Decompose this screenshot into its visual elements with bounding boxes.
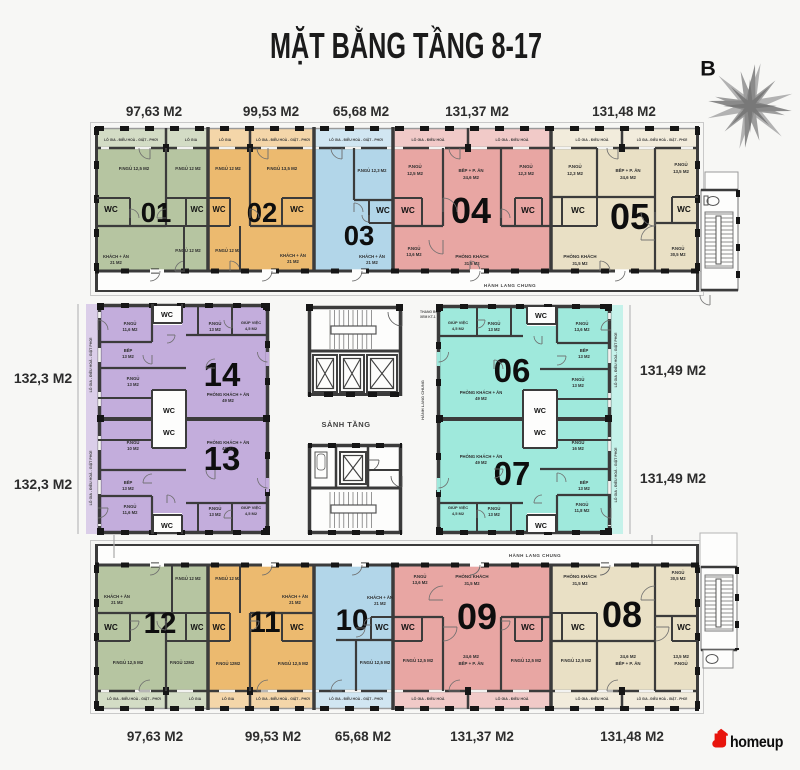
- svg-text:P.NGỦ 12,5 M2: P.NGỦ 12,5 M2: [403, 658, 434, 663]
- svg-text:WC: WC: [534, 428, 546, 437]
- svg-text:13,6 M2: 13,6 M2: [406, 252, 422, 257]
- svg-text:P.NGỦ: P.NGỦ: [576, 502, 589, 507]
- svg-text:P.NGỦ: P.NGỦ: [209, 321, 222, 326]
- svg-text:LÔ GIA - ĐIỀU HOÀ - GIẶT PHƠI: LÔ GIA - ĐIỀU HOÀ - GIẶT PHƠI: [613, 448, 618, 503]
- svg-text:LÔ GIA - ĐIỀU HOÀ - GIẶT PHƠI: LÔ GIA - ĐIỀU HOÀ - GIẶT PHƠI: [88, 451, 93, 506]
- svg-text:XEM KT-1: XEM KT-1: [420, 315, 436, 319]
- svg-text:WC: WC: [290, 623, 304, 632]
- svg-text:P.NGỦ 12M2: P.NGỦ 12M2: [216, 661, 241, 666]
- svg-text:P.NGỦ: P.NGỦ: [488, 506, 501, 511]
- svg-text:P.NGỦ 12 M2: P.NGỦ 12 M2: [175, 166, 201, 171]
- svg-text:PHÒNG KHÁCH + ĂN: PHÒNG KHÁCH + ĂN: [207, 392, 249, 397]
- svg-text:132,3 M2: 132,3 M2: [14, 476, 73, 492]
- svg-text:21 M2: 21 M2: [289, 600, 301, 605]
- svg-text:P.NGỦ: P.NGỦ: [408, 246, 421, 251]
- svg-text:LÔ GIA: LÔ GIA: [185, 137, 198, 142]
- svg-text:131,49 M2: 131,49 M2: [640, 362, 706, 378]
- svg-text:P.NGỦ: P.NGỦ: [572, 440, 585, 445]
- svg-text:KHÁCH + ĂN: KHÁCH + ĂN: [104, 594, 130, 599]
- svg-text:BẾP + P. ĂN: BẾP + P. ĂN: [615, 168, 640, 173]
- svg-text:12,3 M2: 12,3 M2: [567, 171, 583, 176]
- svg-text:24,6 M2: 24,6 M2: [463, 654, 479, 659]
- svg-text:49 M2: 49 M2: [475, 396, 487, 401]
- svg-text:P.NGỦ 12M2: P.NGỦ 12M2: [170, 660, 195, 665]
- svg-text:BẾP: BẾP: [124, 480, 133, 485]
- svg-text:P.NGỦ: P.NGỦ: [672, 246, 685, 251]
- svg-text:24,6 M2: 24,6 M2: [620, 175, 636, 180]
- svg-text:P.NGỦ 12,5 M2: P.NGỦ 12,5 M2: [561, 658, 592, 663]
- svg-text:PHÒNG KHÁCH + ĂN: PHÒNG KHÁCH + ĂN: [207, 440, 249, 445]
- svg-text:PHÒNG KHÁCH + ĂN: PHÒNG KHÁCH + ĂN: [460, 390, 502, 395]
- svg-text:P.NGỦ: P.NGỦ: [408, 164, 421, 169]
- svg-text:P.NGỦ: P.NGỦ: [488, 321, 501, 326]
- svg-text:LÔ GIA - ĐIỀU HOÀ - GIẶT - PHƠ: LÔ GIA - ĐIỀU HOÀ - GIẶT - PHƠI: [104, 137, 158, 142]
- svg-text:LÔ GIA - ĐIỀU HOÀ: LÔ GIA - ĐIỀU HOÀ: [495, 137, 528, 142]
- svg-text:132,3 M2: 132,3 M2: [14, 370, 73, 386]
- svg-text:LÔ GIA - ĐIỀU HOÀ - GIẶT PHƠI: LÔ GIA - ĐIỀU HOÀ - GIẶT PHƠI: [88, 338, 93, 393]
- svg-text:WC: WC: [401, 206, 415, 215]
- svg-text:P.NGỦ 12,5 M2: P.NGỦ 12,5 M2: [119, 166, 150, 171]
- svg-text:LÔ GIA - ĐIỀU HOÀ: LÔ GIA - ĐIỀU HOÀ: [575, 696, 608, 701]
- svg-text:21 M2: 21 M2: [110, 260, 122, 265]
- svg-text:21 M2: 21 M2: [374, 601, 386, 606]
- svg-text:13 M2: 13 M2: [122, 486, 134, 491]
- svg-text:31,5 M2: 31,5 M2: [464, 581, 480, 586]
- svg-text:49 M2: 49 M2: [475, 460, 487, 465]
- svg-text:24,6 M2: 24,6 M2: [463, 175, 479, 180]
- svg-text:LÔ GIA - ĐIỀU HOÀ: LÔ GIA - ĐIỀU HOÀ: [575, 137, 608, 142]
- svg-text:GIÚP VIỆC: GIÚP VIỆC: [241, 320, 261, 325]
- svg-text:24,6 M2: 24,6 M2: [620, 654, 636, 659]
- svg-text:131,37 M2: 131,37 M2: [450, 729, 514, 744]
- svg-text:WC: WC: [677, 623, 691, 632]
- svg-text:BẾP: BẾP: [124, 348, 133, 353]
- svg-text:P.NGỦ: P.NGỦ: [124, 321, 137, 326]
- svg-text:131,37 M2: 131,37 M2: [445, 104, 509, 119]
- svg-text:11,6 M2: 11,6 M2: [123, 510, 139, 515]
- svg-text:WC: WC: [535, 521, 547, 530]
- svg-text:PHÒNG KHÁCH: PHÒNG KHÁCH: [563, 574, 596, 579]
- svg-text:WC: WC: [401, 623, 415, 632]
- svg-text:21 M2: 21 M2: [366, 260, 378, 265]
- svg-text:06: 06: [494, 352, 531, 389]
- svg-text:PHÒNG KHÁCH + ĂN: PHÒNG KHÁCH + ĂN: [460, 454, 502, 459]
- svg-text:131,48 M2: 131,48 M2: [592, 104, 656, 119]
- svg-text:P.NGỦ: P.NGỦ: [124, 504, 137, 509]
- svg-text:LÔ GIA: LÔ GIA: [219, 137, 232, 142]
- svg-text:03: 03: [344, 220, 375, 251]
- svg-text:131,49 M2: 131,49 M2: [640, 470, 706, 486]
- svg-text:HÀNH LANG CHUNG: HÀNH LANG CHUNG: [509, 552, 561, 558]
- svg-text:4,5 M2: 4,5 M2: [452, 326, 465, 331]
- svg-text:P.NGỦ: P.NGỦ: [572, 377, 585, 382]
- svg-text:MẶT BẰNG TẦNG 8-17: MẶT BẰNG TẦNG 8-17: [270, 25, 542, 66]
- svg-text:65,68 M2: 65,68 M2: [333, 104, 389, 119]
- svg-text:13 M2: 13 M2: [209, 512, 221, 517]
- svg-text:LÔ GIA - ĐIỀU HOÀ - GIẶT - PHƠ: LÔ GIA - ĐIỀU HOÀ - GIẶT - PHƠI: [637, 137, 688, 142]
- svg-text:BẾP: BẾP: [580, 480, 589, 485]
- svg-text:LÔ GIA - ĐIỀU HOÀ - GIẶT - PHƠ: LÔ GIA - ĐIỀU HOÀ - GIẶT - PHƠI: [256, 696, 310, 701]
- svg-text:30,5 M2: 30,5 M2: [670, 576, 686, 581]
- svg-text:WC: WC: [191, 205, 204, 214]
- svg-text:P.NGỦ: P.NGỦ: [127, 440, 140, 445]
- svg-text:131,48 M2: 131,48 M2: [600, 729, 664, 744]
- svg-text:P.NGỦ: P.NGỦ: [414, 574, 427, 579]
- svg-text:B: B: [700, 57, 716, 81]
- svg-text:P.NGỦ: P.NGỦ: [672, 570, 685, 575]
- svg-text:10 M2: 10 M2: [127, 446, 139, 451]
- svg-text:30,5 M2: 30,5 M2: [670, 252, 686, 257]
- svg-text:P.NGỦ 12 M2: P.NGỦ 12 M2: [175, 576, 201, 581]
- svg-text:LÔ GIA - ĐIỀU HOÀ - GIẶT - PHƠ: LÔ GIA - ĐIỀU HOÀ - GIẶT - PHƠI: [329, 137, 383, 142]
- svg-text:12,3 M2: 12,3 M2: [518, 171, 534, 176]
- svg-text:P.NGỦ: P.NGỦ: [209, 506, 222, 511]
- svg-text:WC: WC: [163, 428, 175, 437]
- svg-text:4,5 M2: 4,5 M2: [245, 326, 258, 331]
- svg-text:11: 11: [249, 606, 280, 639]
- svg-text:13 M2: 13 M2: [572, 383, 584, 388]
- svg-text:KHÁCH + ĂN: KHÁCH + ĂN: [103, 254, 129, 259]
- svg-text:21 M2: 21 M2: [111, 600, 123, 605]
- svg-text:P.NGỦ: P.NGỦ: [674, 162, 687, 167]
- svg-text:BẾP + P. ĂN: BẾP + P. ĂN: [615, 661, 640, 666]
- svg-text:13,6 M2: 13,6 M2: [574, 327, 590, 332]
- svg-text:WC: WC: [677, 205, 691, 214]
- svg-text:P.NGỦ 12 M2: P.NGỦ 12 M2: [215, 166, 241, 171]
- svg-text:WC: WC: [375, 623, 389, 632]
- svg-text:LÔ GIA - ĐIỀU HOÀ: LÔ GIA - ĐIỀU HOÀ: [495, 696, 528, 701]
- svg-text:13 M2: 13 M2: [127, 382, 139, 387]
- svg-text:P.NGỦ: P.NGỦ: [519, 164, 532, 169]
- svg-text:P.NGỦ 12,5 M2: P.NGỦ 12,5 M2: [360, 660, 391, 665]
- svg-text:P.NGỦ 12,5 M2: P.NGỦ 12,5 M2: [511, 658, 542, 663]
- svg-text:65,68 M2: 65,68 M2: [335, 729, 391, 744]
- svg-text:KHÁCH + ĂN: KHÁCH + ĂN: [359, 254, 385, 259]
- svg-text:31,5 M2: 31,5 M2: [572, 261, 588, 266]
- svg-text:BẾP: BẾP: [580, 348, 589, 353]
- svg-text:97,63 M2: 97,63 M2: [126, 104, 182, 119]
- svg-text:SẢNH TẦNG: SẢNH TẦNG: [321, 419, 370, 429]
- svg-text:WC: WC: [290, 205, 304, 214]
- svg-text:13 M2: 13 M2: [488, 327, 500, 332]
- svg-text:P.NGỦ 12 M2: P.NGỦ 12 M2: [175, 248, 201, 253]
- svg-text:16 M2: 16 M2: [572, 446, 584, 451]
- svg-text:LÔ GIA - ĐIỀU HOÀ - GIẶT PHƠI: LÔ GIA - ĐIỀU HOÀ - GIẶT PHƠI: [613, 333, 618, 388]
- svg-text:LÔ GIA - ĐIỀU HOÀ: LÔ GIA - ĐIỀU HOÀ: [411, 696, 444, 701]
- svg-text:WC: WC: [213, 205, 226, 214]
- svg-text:P.NGỦ 12,5 M2: P.NGỦ 12,5 M2: [278, 661, 309, 666]
- svg-text:WC: WC: [161, 310, 173, 319]
- svg-text:HÀNH LANG CHUNG: HÀNH LANG CHUNG: [484, 282, 536, 288]
- svg-text:P.NGỦ: P.NGỦ: [568, 164, 581, 169]
- svg-text:LÔ GIA - ĐIỀU HOÀ - GIẶT - PHƠ: LÔ GIA - ĐIỀU HOÀ - GIẶT - PHƠI: [637, 696, 688, 701]
- svg-text:P.NGỦ: P.NGỦ: [127, 376, 140, 381]
- svg-text:LÔ GIA - ĐIỀU HOÀ: LÔ GIA - ĐIỀU HOÀ: [411, 137, 444, 142]
- svg-text:13,6 M2: 13,6 M2: [412, 580, 428, 585]
- svg-text:99,53 M2: 99,53 M2: [245, 729, 301, 744]
- svg-text:13 M2: 13 M2: [578, 354, 590, 359]
- svg-text:4,5 M2: 4,5 M2: [245, 511, 258, 516]
- svg-text:KHÁCH + ĂN: KHÁCH + ĂN: [280, 253, 306, 258]
- svg-text:WC: WC: [534, 406, 546, 415]
- svg-text:BẾP + P. ĂN: BẾP + P. ĂN: [458, 168, 483, 173]
- svg-text:P.NGỦ 12 M2: P.NGỦ 12 M2: [215, 248, 241, 253]
- svg-text:99,53 M2: 99,53 M2: [243, 104, 299, 119]
- svg-text:01: 01: [141, 197, 172, 228]
- svg-text:11,6 M2: 11,6 M2: [123, 327, 139, 332]
- svg-text:P.NGỦ: P.NGỦ: [674, 661, 687, 666]
- svg-text:08: 08: [602, 594, 642, 635]
- svg-text:P.NGỦ 12,3 M2: P.NGỦ 12,3 M2: [357, 168, 387, 173]
- svg-text:13 M2: 13 M2: [578, 486, 590, 491]
- svg-text:21 M2: 21 M2: [287, 259, 299, 264]
- svg-text:PHÒNG KHÁCH: PHÒNG KHÁCH: [455, 254, 488, 259]
- svg-text:10: 10: [336, 604, 369, 637]
- svg-text:P.NGỦ 13,5 M2: P.NGỦ 13,5 M2: [267, 166, 298, 171]
- svg-text:WC: WC: [163, 406, 175, 415]
- svg-text:13,5 M2: 13,5 M2: [673, 169, 689, 174]
- svg-text:P.NGỦ 12 M2: P.NGỦ 12 M2: [215, 576, 241, 581]
- svg-text:WC: WC: [571, 623, 585, 632]
- svg-text:LÔ GIA - ĐIỀU HOÀ - GIẶT - PHƠ: LÔ GIA - ĐIỀU HOÀ - GIẶT - PHƠI: [256, 137, 310, 142]
- svg-text:GIÚP VIỆC: GIÚP VIỆC: [448, 505, 468, 510]
- svg-text:LÔ GIA - ĐIỀU HOÀ - GIẶT - PHƠ: LÔ GIA - ĐIỀU HOÀ - GIẶT - PHƠI: [107, 696, 161, 701]
- svg-text:WC: WC: [104, 205, 118, 214]
- svg-text:97,63 M2: 97,63 M2: [127, 729, 183, 744]
- svg-text:WC: WC: [191, 623, 204, 632]
- svg-text:11,8 M2: 11,8 M2: [575, 508, 591, 513]
- svg-text:WC: WC: [521, 623, 535, 632]
- svg-text:LÔ GIA - ĐIỀU HOÀ - GIẶT - PHƠ: LÔ GIA - ĐIỀU HOÀ - GIẶT - PHƠI: [329, 696, 383, 701]
- svg-text:GIÚP VIỆC: GIÚP VIỆC: [448, 320, 468, 325]
- svg-text:12,5 M2: 12,5 M2: [407, 171, 423, 176]
- svg-text:PHÒNG KHÁCH: PHÒNG KHÁCH: [563, 254, 596, 259]
- svg-text:WC: WC: [161, 521, 173, 530]
- svg-text:WC: WC: [213, 623, 226, 632]
- svg-text:09: 09: [457, 596, 497, 637]
- svg-text:LÔ GIA: LÔ GIA: [222, 696, 235, 701]
- svg-text:49 M2: 49 M2: [222, 398, 234, 403]
- svg-text:homeup: homeup: [730, 734, 783, 751]
- svg-text:13 M2: 13 M2: [488, 512, 500, 517]
- svg-text:WC: WC: [104, 623, 118, 632]
- svg-text:49 M2: 49 M2: [222, 446, 234, 451]
- svg-text:07: 07: [494, 455, 531, 492]
- svg-text:HÀNH LANG CHUNG: HÀNH LANG CHUNG: [420, 380, 425, 420]
- svg-text:WC: WC: [571, 206, 585, 215]
- svg-text:13 M2: 13 M2: [209, 327, 221, 332]
- svg-text:WC: WC: [535, 311, 547, 320]
- svg-text:31,5 M2: 31,5 M2: [572, 581, 588, 586]
- svg-text:KHÁCH + ĂN: KHÁCH + ĂN: [367, 595, 393, 600]
- svg-text:13,5 M2: 13,5 M2: [673, 654, 689, 659]
- svg-text:4,5 M2: 4,5 M2: [452, 511, 465, 516]
- svg-text:KHÁCH + ĂN: KHÁCH + ĂN: [282, 594, 308, 599]
- svg-text:WC: WC: [376, 206, 390, 215]
- svg-text:P.NGỦ: P.NGỦ: [576, 321, 589, 326]
- svg-text:WC: WC: [521, 206, 535, 215]
- svg-text:13 M2: 13 M2: [122, 354, 134, 359]
- svg-text:BẾP + P. ĂN: BẾP + P. ĂN: [458, 661, 483, 666]
- svg-text:P.NGỦ 12,5 M2: P.NGỦ 12,5 M2: [113, 660, 144, 665]
- svg-text:02: 02: [247, 197, 278, 228]
- svg-text:LÔ GIA: LÔ GIA: [189, 696, 202, 701]
- svg-text:GIÚP VIỆC: GIÚP VIỆC: [241, 505, 261, 510]
